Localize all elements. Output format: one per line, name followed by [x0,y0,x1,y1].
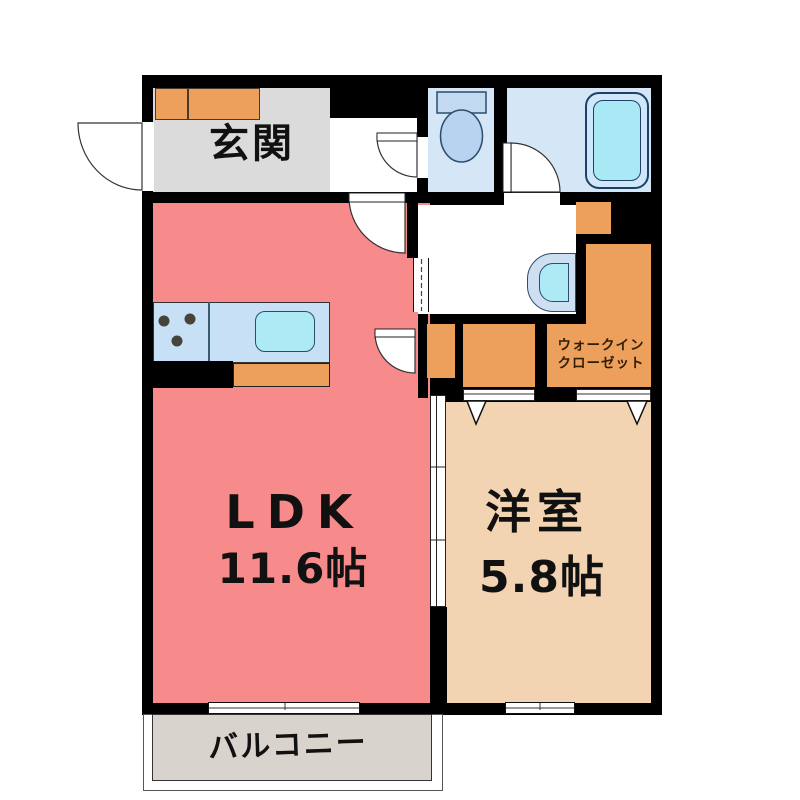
walk-in-closet-label-line2: クローゼット [558,357,645,371]
entrance-label: 玄関 [209,124,295,164]
floor-plan: 玄関 LDK 11.6帖 洋室 5.8帖 ウォークイン クローゼット バルコニー [0,0,800,800]
ldk-western-sliding-door [430,395,446,607]
kitchen-sink-icon [255,311,315,352]
shoe-cabinet-divider [187,88,189,120]
kitchen-base-cabinet [233,363,330,387]
kitchen-base-black [142,361,233,388]
closet-box-b [463,324,535,387]
wall-ldk-washroom-upper [407,192,418,258]
western-room-size-label: 5.8帖 [479,556,605,600]
bathtub-inner [593,100,641,181]
balcony-window [208,702,360,714]
shoe-cabinet [155,88,260,120]
western-room-window [505,702,575,714]
bathroom-doorway-gap [504,193,560,206]
washbasin-bowl [539,263,569,302]
closet-sliding-door-left [463,389,535,401]
ldk-label: LDK [225,489,364,535]
kitchen-counter-divider [208,302,210,363]
walk-in-closet-label-line1: ウォークイン [558,339,645,353]
closet-box-a [427,324,455,378]
ldk-size-label: 11.6帖 [218,548,369,590]
western-room-label: 洋室 [485,489,589,535]
hallway-floor [330,118,417,193]
balcony-label: バルコニー [208,728,368,764]
entrance-doorway-gap [141,122,154,191]
closet-sliding-door-right [576,389,651,401]
toilet-room-floor [428,88,494,195]
wall-ldk-western-lower [430,607,447,703]
storage-box [576,202,611,234]
toilet-doorway-gap [416,137,428,178]
sliding-door-opening [413,258,429,312]
ldk-floor [153,203,430,703]
entrance-door-swing-icon [78,123,142,190]
